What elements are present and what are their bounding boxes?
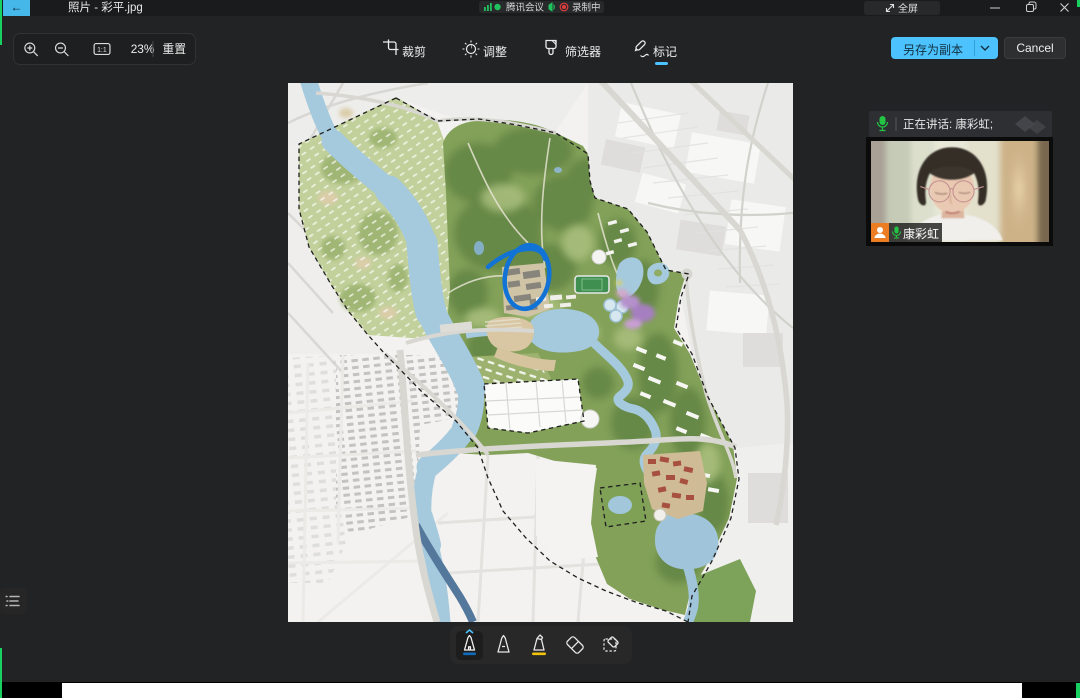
svg-text:1:1: 1:1 bbox=[97, 47, 107, 54]
svg-text:录制中: 录制中 bbox=[572, 2, 601, 14]
svg-text:重置: 重置 bbox=[162, 42, 186, 56]
svg-text:正在讲话: 康彩虹;: 正在讲话: 康彩虹; bbox=[903, 117, 993, 131]
svg-text:全屏: 全屏 bbox=[898, 2, 918, 15]
svg-text:腾讯会议: 腾讯会议 bbox=[506, 2, 545, 14]
svg-text:23%: 23% bbox=[131, 42, 155, 56]
